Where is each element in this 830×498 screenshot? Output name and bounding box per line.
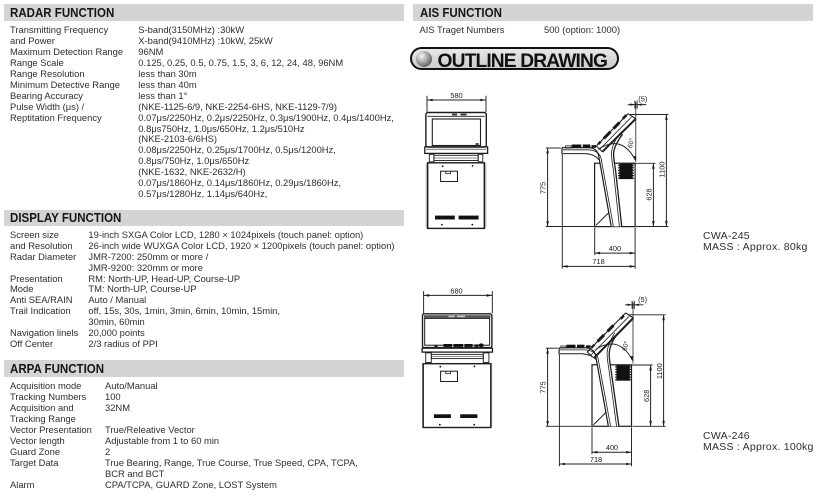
svg-text:580: 580: [450, 91, 462, 100]
svg-text:60°: 60°: [626, 137, 636, 149]
svg-text:400: 400: [606, 443, 618, 452]
svg-text:60°: 60°: [620, 340, 630, 352]
svg-text:(5): (5): [638, 295, 647, 304]
svg-text:775: 775: [538, 182, 547, 194]
svg-text:775: 775: [538, 381, 547, 393]
svg-text:(5): (5): [638, 95, 647, 104]
svg-text:718: 718: [592, 257, 604, 266]
svg-text:1100: 1100: [655, 363, 664, 379]
svg-text:680: 680: [450, 286, 462, 295]
svg-text:628: 628: [642, 390, 651, 402]
svg-text:1100: 1100: [658, 162, 667, 178]
svg-text:718: 718: [590, 455, 602, 464]
svg-text:628: 628: [645, 188, 654, 200]
svg-text:400: 400: [609, 244, 621, 253]
